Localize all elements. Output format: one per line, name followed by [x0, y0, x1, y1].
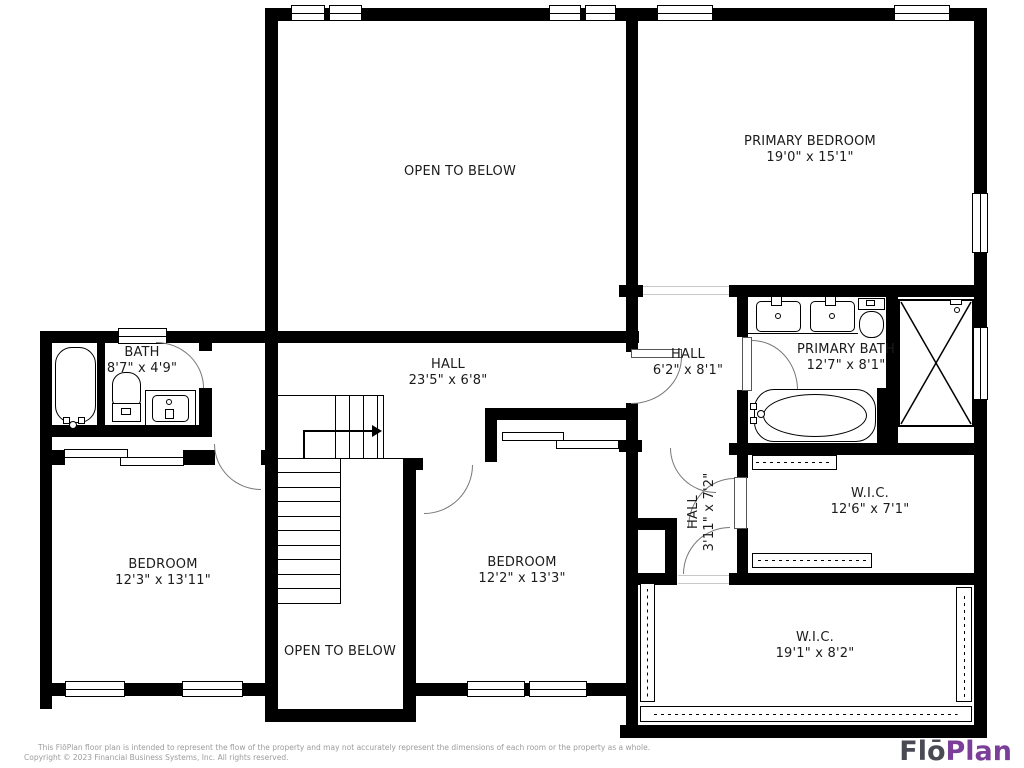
room-name: OPEN TO BELOW: [404, 164, 516, 180]
room-name: HALL: [409, 357, 488, 373]
sink-drain-icon: [166, 399, 172, 405]
toilet-button-icon: [866, 300, 875, 306]
wall: [626, 573, 638, 737]
toilet-button-icon: [121, 408, 131, 415]
room-dims: 19'0" x 15'1": [744, 150, 876, 166]
sink-faucet-icon: [771, 296, 782, 306]
wall: [737, 390, 748, 443]
room-name: BATH: [107, 345, 177, 361]
room-label-open-to-below-lower: OPEN TO BELOW: [284, 644, 396, 660]
showerhead-icon: [954, 307, 960, 313]
room-dims: 6'2" x 8'1": [653, 363, 723, 379]
opening-line: [643, 294, 729, 295]
room-name: HALL: [653, 347, 723, 363]
room-label-hall-upper: HALL 6'2" x 8'1": [653, 347, 723, 379]
wall: [265, 709, 416, 722]
room-label-bath: BATH 8'7" x 4'9": [107, 345, 177, 377]
window-symbol: [894, 5, 950, 21]
floorplan-canvas: OPEN TO BELOW PRIMARY BEDROOM 19'0" x 15…: [0, 0, 1024, 768]
room-name: W.I.C.: [776, 630, 855, 646]
wall: [633, 518, 677, 530]
window-symbol: [65, 681, 125, 697]
sliding-door: [502, 432, 564, 441]
room-label-wic-upper: W.I.C. 12'6" x 7'1": [831, 486, 910, 518]
window-symbol: [329, 5, 362, 21]
window-symbol: [529, 681, 587, 697]
stair-tread: [278, 501, 340, 502]
wall: [729, 443, 987, 455]
disclaimer-line2: Copyright © 2023 Financial Business Syst…: [24, 753, 289, 762]
window-symbol: [549, 5, 581, 21]
stair-tread: [278, 574, 340, 575]
logo-plan: Plan: [946, 736, 1013, 767]
closet-rod: [640, 583, 655, 702]
tub-drain-icon: [757, 410, 765, 418]
sliding-door: [556, 440, 619, 449]
toilet-icon: [859, 311, 884, 338]
opening-line: [643, 286, 729, 287]
room-dims: 12'6" x 7'1": [831, 502, 910, 518]
stair-tread: [383, 395, 384, 458]
stair-tread: [278, 588, 340, 589]
window-symbol: [657, 5, 713, 21]
wall: [261, 450, 278, 465]
stair-direction-line: [303, 430, 374, 432]
room-label-bedroom-left: BEDROOM 12'3" x 13'11": [115, 557, 211, 589]
tub-drain-icon: [69, 421, 77, 429]
closet-rod: [956, 587, 972, 702]
stair-stringer: [340, 458, 341, 604]
wall: [97, 343, 105, 425]
wall: [626, 8, 638, 297]
room-label-primary-bath: PRIMARY BATH 12'7" x 8'1": [797, 342, 895, 374]
stair-tread: [278, 559, 340, 560]
wall: [416, 683, 638, 696]
room-dims: 19'1" x 8'2": [776, 646, 855, 662]
logo-flo: Flō: [899, 736, 945, 767]
showerhead-icon: [950, 299, 962, 305]
wall: [626, 403, 638, 574]
room-dims: 12'7" x 8'1": [797, 358, 895, 374]
room-label-wic-lower: W.I.C. 19'1" x 8'2": [776, 630, 855, 662]
sink-faucet-icon: [825, 296, 836, 306]
door-leaf: [734, 477, 747, 529]
tub-faucet-icon: [78, 417, 85, 424]
window-symbol: [972, 327, 988, 400]
room-name: BEDROOM: [115, 557, 211, 573]
room-dims: 23'5" x 6'8": [409, 373, 488, 389]
bathtub-icon: [55, 347, 96, 423]
room-label-bedroom-center: BEDROOM 12'2" x 13'3": [478, 555, 565, 587]
stair-edge: [278, 458, 404, 459]
toilet-icon: [112, 372, 141, 406]
room-label-open-to-below-upper: OPEN TO BELOW: [404, 164, 516, 180]
counter-edge: [748, 333, 858, 334]
tub-faucet-icon: [750, 417, 757, 424]
tub-faucet-icon: [750, 403, 757, 410]
window-symbol: [467, 681, 525, 697]
opening-line: [678, 575, 729, 576]
stair-edge: [278, 395, 384, 396]
wall: [183, 450, 215, 465]
closet-rod: [752, 553, 872, 568]
room-dims: 12'3" x 13'11": [115, 573, 211, 589]
room-label-primary-bedroom: PRIMARY BEDROOM 19'0" x 15'1": [744, 134, 876, 166]
closet-rod: [640, 706, 972, 722]
window-symbol: [182, 681, 243, 697]
wall: [199, 343, 212, 351]
stair-tread: [278, 472, 340, 473]
wall: [40, 450, 65, 465]
stair-tread: [278, 487, 340, 488]
wall: [619, 285, 643, 297]
room-name: OPEN TO BELOW: [284, 644, 396, 660]
room-name: HALL: [686, 473, 702, 552]
sliding-door: [64, 449, 128, 458]
disclaimer-line1: This FlōPlan floor plan is intended to r…: [38, 743, 650, 752]
window-symbol: [585, 5, 616, 21]
floplan-logo: FlōPlan: [899, 736, 1012, 767]
stair-tread: [278, 603, 340, 604]
shower-x-icon: [898, 299, 974, 427]
stair-tread: [278, 516, 340, 517]
stair-tread: [278, 545, 340, 546]
stair-tread: [335, 395, 336, 458]
sink-drain-icon: [775, 313, 781, 319]
wall: [737, 528, 748, 573]
wall: [403, 458, 416, 722]
room-label-hall-small: HALL 3'11" x 7'2": [686, 473, 718, 552]
room-name: PRIMARY BATH: [797, 342, 895, 358]
room-dims: 8'7" x 4'9": [107, 361, 177, 377]
door-arc: [214, 444, 261, 490]
stair-arrow-icon: [372, 425, 382, 437]
opening-line: [678, 583, 729, 584]
freestanding-tub-icon: [763, 394, 867, 437]
wall: [265, 8, 278, 343]
stair-tread: [278, 530, 340, 531]
window-symbol: [972, 193, 988, 253]
wall: [619, 440, 642, 452]
stair-direction-line: [303, 430, 305, 458]
wall: [40, 331, 52, 709]
wall: [626, 297, 638, 352]
room-name: W.I.C.: [831, 486, 910, 502]
closet-rod: [752, 455, 837, 470]
door-arc: [424, 465, 473, 514]
room-name: BEDROOM: [478, 555, 565, 571]
wall: [485, 408, 497, 462]
wall: [485, 408, 628, 420]
sink-faucet-icon: [165, 409, 174, 419]
room-name: PRIMARY BEDROOM: [744, 134, 876, 150]
wall: [403, 458, 423, 470]
room-label-hall-main: HALL 23'5" x 6'8": [409, 357, 488, 389]
wall: [737, 455, 748, 478]
wall: [737, 297, 748, 337]
wall: [265, 343, 278, 722]
stair-tread: [363, 395, 364, 458]
wall: [729, 285, 987, 297]
door-leaf: [742, 337, 752, 391]
room-dims: 12'2" x 13'3": [478, 571, 565, 587]
window-symbol: [291, 5, 325, 21]
door-arc: [752, 340, 798, 390]
wall: [729, 573, 987, 585]
sink-drain-icon: [829, 313, 835, 319]
stair-tread: [349, 395, 350, 458]
sliding-door: [120, 457, 184, 466]
wall: [40, 425, 212, 437]
room-dims: 3'11" x 7'2": [702, 473, 718, 552]
